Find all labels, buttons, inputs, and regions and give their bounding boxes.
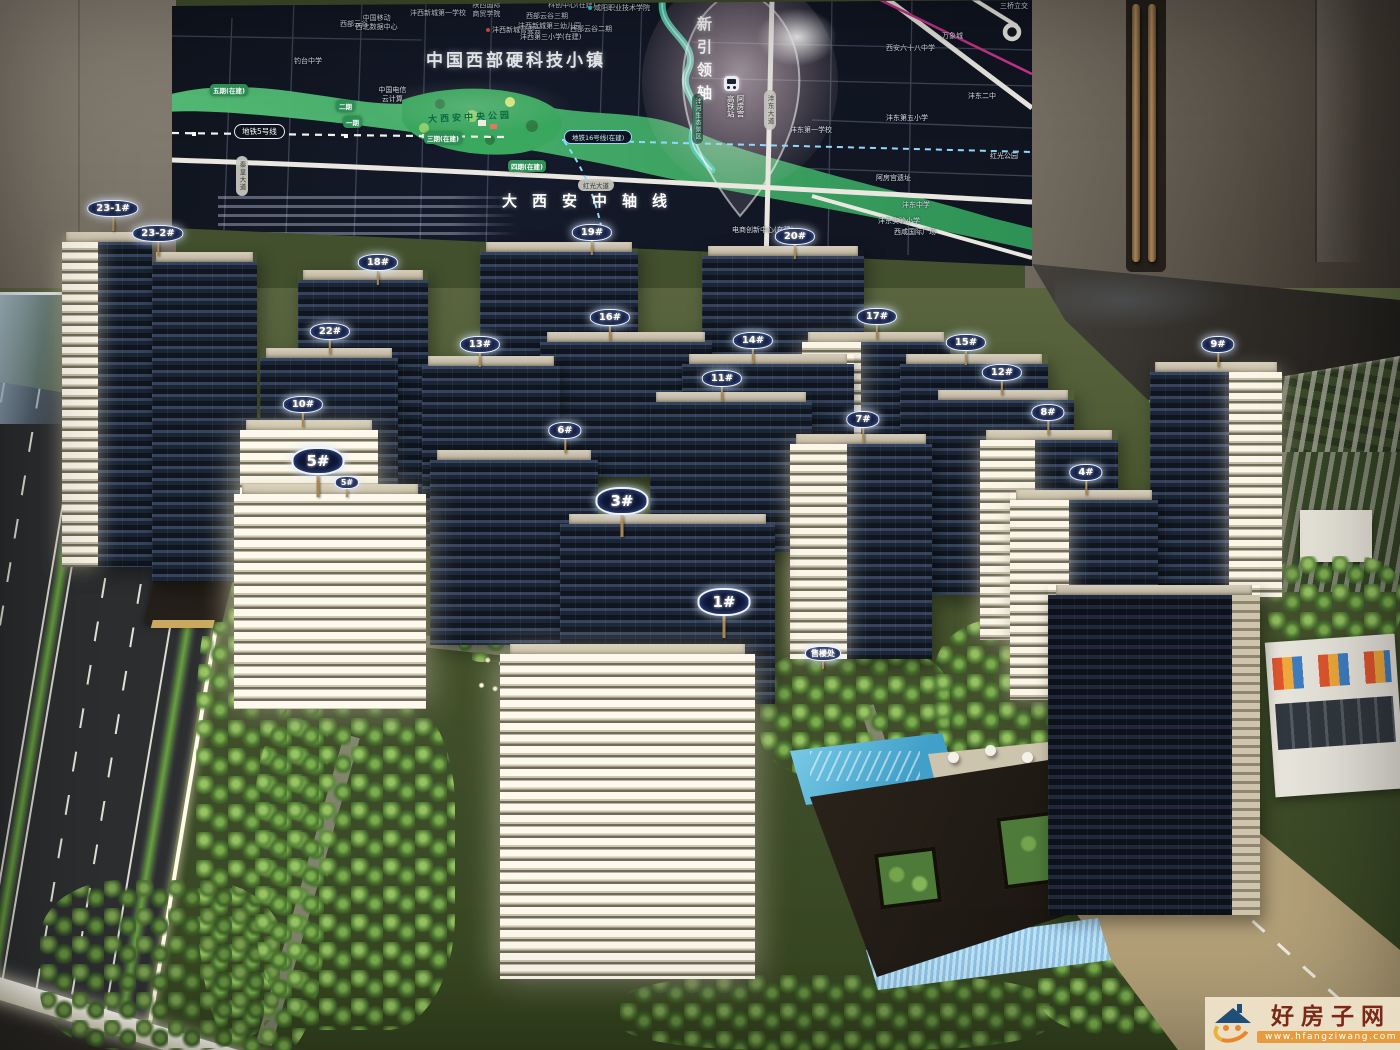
building-sign: 15# xyxy=(946,330,986,365)
building-sign-label: 22# xyxy=(310,323,350,340)
sign-pole xyxy=(479,353,481,367)
building-sign: 11# xyxy=(702,366,742,401)
sign-pole xyxy=(302,413,304,427)
building-sign-label: 23-2# xyxy=(132,225,183,242)
building-sign: 20# xyxy=(775,224,815,259)
building-sign: 17# xyxy=(857,304,897,339)
sign-pole xyxy=(591,241,593,255)
sign-pole xyxy=(794,245,796,259)
building-sign-label: 11# xyxy=(702,370,742,387)
building-sign-layer: 23-1#23-2#18#19#20#22#16#13#14#17#15#11#… xyxy=(0,0,1400,1050)
building-sign-label: 8# xyxy=(1031,404,1064,421)
sales-center-model-photo: 中国西部硬科技小镇 大西安中轴线 新引领轴 阿房宫 高铁站 大西安中央公园 地铁… xyxy=(0,0,1400,1050)
building-sign-label: 4# xyxy=(1069,464,1102,481)
building-sign: 3# xyxy=(595,487,648,537)
sign-pole xyxy=(1217,353,1219,367)
sign-pole xyxy=(965,351,967,365)
house-logo-icon xyxy=(1211,1002,1257,1046)
building-sign: 22# xyxy=(310,319,350,354)
sign-pole xyxy=(822,661,824,669)
building-sign: 8# xyxy=(1031,400,1064,435)
building-sign: 4# xyxy=(1069,460,1102,495)
sign-pole xyxy=(346,489,348,497)
building-sign-label: 16# xyxy=(590,309,630,326)
building-sign: 9# xyxy=(1201,332,1234,367)
building-sign: 18# xyxy=(358,250,398,285)
building-sign: 5# xyxy=(335,470,359,497)
building-sign-label: 售楼处 xyxy=(805,646,841,661)
building-sign-label: 3# xyxy=(595,487,648,515)
building-sign-label: 5# xyxy=(335,476,359,489)
building-sign-label: 10# xyxy=(283,396,323,413)
sign-pole xyxy=(564,439,566,453)
building-sign-label: 1# xyxy=(697,588,750,616)
building-sign: 14# xyxy=(733,328,773,363)
sign-pole xyxy=(112,217,114,231)
site-watermark: 好房子网 www.hfangziwang.com xyxy=(1205,997,1400,1050)
building-sign-label: 18# xyxy=(358,254,398,271)
building-sign: 售楼处 xyxy=(805,641,841,669)
building-sign: 23-2# xyxy=(132,221,183,256)
sign-pole xyxy=(752,349,754,363)
sign-pole xyxy=(316,475,319,497)
sign-pole xyxy=(721,387,723,401)
sign-pole xyxy=(609,326,611,340)
building-sign: 1# xyxy=(697,588,750,638)
building-sign-label: 15# xyxy=(946,334,986,351)
sign-pole xyxy=(1047,421,1049,435)
sign-pole xyxy=(876,325,878,339)
sign-pole xyxy=(1001,381,1003,395)
sign-pole xyxy=(1085,481,1087,495)
building-sign: 12# xyxy=(982,360,1022,395)
building-sign-label: 13# xyxy=(460,336,500,353)
building-sign: 7# xyxy=(846,407,879,442)
sign-pole xyxy=(329,340,331,354)
watermark-site-name: 好房子网 xyxy=(1271,1004,1391,1029)
building-sign-label: 23-1# xyxy=(87,200,138,217)
building-sign-label: 7# xyxy=(846,411,879,428)
building-sign-label: 9# xyxy=(1201,336,1234,353)
building-sign: 16# xyxy=(590,305,630,340)
sign-pole xyxy=(862,428,864,442)
building-sign-label: 19# xyxy=(572,224,612,241)
building-sign: 19# xyxy=(572,220,612,255)
building-sign: 6# xyxy=(548,418,581,453)
building-sign-label: 20# xyxy=(775,228,815,245)
building-sign: 10# xyxy=(283,392,323,427)
sign-pole xyxy=(377,271,379,285)
sign-pole xyxy=(722,616,725,638)
building-sign: 13# xyxy=(460,332,500,367)
watermark-site-url: www.hfangziwang.com xyxy=(1257,1031,1400,1043)
sign-pole xyxy=(157,242,159,256)
building-sign-label: 17# xyxy=(857,308,897,325)
building-sign-label: 6# xyxy=(548,422,581,439)
building-sign-label: 14# xyxy=(733,332,773,349)
building-sign-label: 12# xyxy=(982,364,1022,381)
building-sign: 23-1# xyxy=(87,196,138,231)
sign-pole xyxy=(620,515,623,537)
